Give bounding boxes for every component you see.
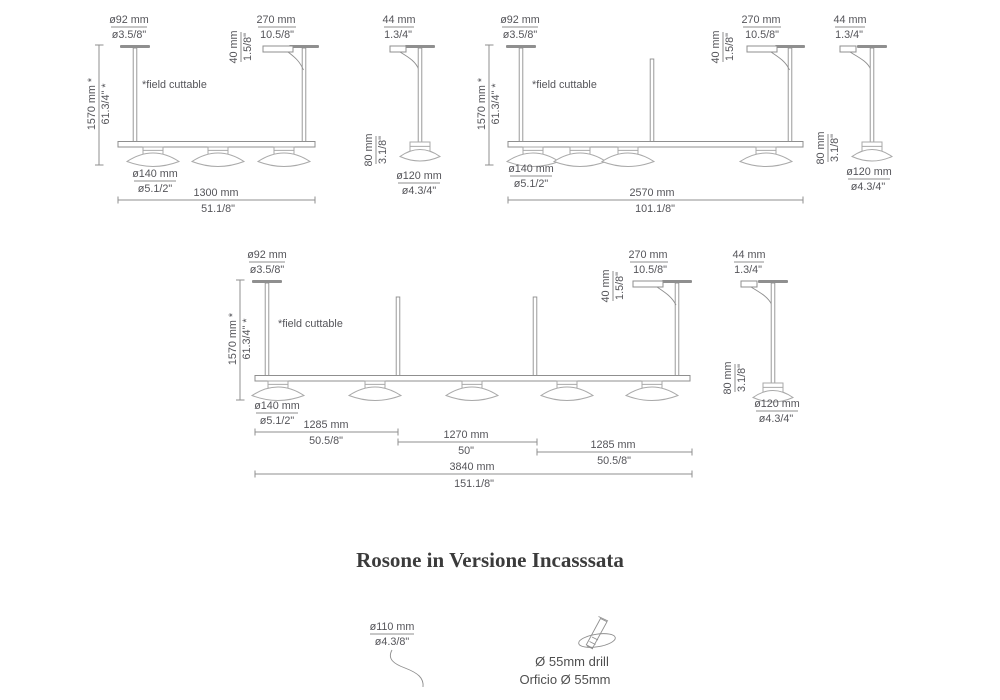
- drill-note-it: Orficio Ø 55mm: [519, 672, 610, 687]
- dim-canopy44-inch: 1.3/4": [384, 29, 412, 41]
- dim-drop1570-mm: 1570 mm *: [227, 312, 239, 365]
- dim-drop80-mm: 80 mm: [722, 361, 734, 394]
- dim-canopy44-mm: 44 mm: [383, 14, 416, 26]
- dim-drop1570-mm: 1570 mm *: [476, 77, 488, 130]
- dim-shade120-mm: ø120 mm: [846, 166, 892, 178]
- lamp-shade: [192, 147, 244, 167]
- power-canopy-box: [747, 46, 777, 52]
- dim-shade140-inch: ø5.1/2": [260, 415, 295, 427]
- dim-shade140-inch: ø5.1/2": [138, 183, 173, 195]
- fixture-3840mm: 1570 mm * 61.3/4" * ø92 mm ø3.5/8" 270 m…: [227, 249, 692, 490]
- dim-rosone110-mm: ø110 mm: [370, 621, 415, 633]
- dim-canopy92-mm: ø92 mm: [500, 14, 540, 26]
- dim-drop80-inch: 3.1/8": [736, 364, 748, 392]
- lamp-shade: [400, 142, 440, 161]
- field-cuttable-note: *field cuttable: [142, 79, 207, 91]
- suspension-rod: [675, 283, 679, 376]
- ceiling-canopy: [252, 280, 282, 283]
- fixture-bar: [508, 142, 803, 148]
- dim-len1270-inch: 50": [458, 445, 474, 457]
- fixture-bar: [118, 142, 315, 148]
- dim-canopy92-mm: ø92 mm: [109, 14, 149, 26]
- dim-shade120-mm: ø120 mm: [396, 170, 442, 182]
- power-wire: [751, 287, 772, 305]
- dim-shade120-inch: ø4.3/4": [851, 181, 886, 193]
- dim-track270-mm: 270 mm: [741, 14, 780, 26]
- dim-len1285-mm: 1285 mm: [590, 439, 635, 451]
- dim-track270-mm: 270 mm: [256, 14, 295, 26]
- dim-canopy92-mm: ø92 mm: [247, 249, 287, 261]
- power-wire: [400, 52, 419, 70]
- suspension-rod: [302, 48, 306, 142]
- dim-len2570-mm: 2570 mm: [629, 187, 674, 199]
- power-wire: [657, 287, 676, 305]
- suspension-rod: [771, 283, 775, 383]
- fixture-2570mm: 1570 mm * 61.3/4" * ø92 mm ø3.5/8" 270 m…: [476, 14, 805, 215]
- dim-track40-inch: 1.5/8": [242, 33, 254, 61]
- lamp-shade: [252, 381, 304, 401]
- dim-track40-mm: 40 mm: [600, 269, 612, 302]
- dim-track40-inch: 1.5/8": [614, 272, 626, 300]
- dim-shade140-inch: ø5.1/2": [514, 178, 549, 190]
- dim-rosone110-inch: ø4.3/8": [375, 636, 410, 648]
- dim-drop80-inch: 3.1/8": [377, 136, 389, 164]
- dim-len3840-inch: 151.1/8": [454, 478, 494, 490]
- dim-track270-inch: 10.5/8": [260, 29, 294, 41]
- dim-len1270-mm: 1270 mm: [443, 429, 488, 441]
- lamp-shade: [349, 381, 401, 401]
- dim-len3840-mm: 3840 mm: [449, 461, 494, 473]
- dim-track40-mm: 40 mm: [228, 30, 240, 63]
- power-canopy-box: [633, 281, 663, 287]
- pendant-single-1: 44 mm 1.3/4" 80 mm 3.1/8" ø120 mm ø4.3/4…: [363, 14, 442, 197]
- dim-track270-mm: 270 mm: [628, 249, 667, 261]
- dim-canopy44-mm: 44 mm: [733, 249, 766, 261]
- support-rod-cut: [396, 297, 400, 376]
- power-canopy-box: [741, 281, 757, 287]
- dim-drop80-inch: 3.1/8": [829, 134, 841, 162]
- dim-len1300-mm: 1300 mm: [193, 187, 238, 199]
- support-rod-cut: [533, 297, 537, 376]
- support-rod-cut: [650, 59, 654, 142]
- ceiling-canopy: [758, 280, 788, 283]
- dim-track270-inch: 10.5/8": [745, 29, 779, 41]
- dim-canopy92-inch: ø3.5/8": [503, 29, 538, 41]
- field-cuttable-note: *field cuttable: [532, 79, 597, 91]
- lamp-shade: [740, 147, 792, 167]
- dim-shade140-mm: ø140 mm: [254, 400, 300, 412]
- dim-shade140-mm: ø140 mm: [508, 163, 554, 175]
- dim-drop1570-inch: 61.3/4" *: [241, 318, 253, 360]
- dim-drop1570-inch: 61.3/4" *: [490, 83, 502, 125]
- dim-len1285-mm: 1285 mm: [303, 419, 348, 431]
- dim-shade120-inch: ø4.3/4": [402, 185, 437, 197]
- dim-track40-mm: 40 mm: [710, 30, 722, 63]
- suspension-rod: [870, 48, 874, 142]
- pendant-single-3: 44 mm 1.3/4" 80 mm 3.1/8" ø120 mm ø4.3/4…: [722, 249, 800, 425]
- lamp-shade: [554, 147, 606, 167]
- dim-len2570-inch: 101.1/8": [635, 203, 675, 215]
- power-wire: [771, 52, 790, 70]
- dim-canopy92-inch: ø3.5/8": [112, 29, 147, 41]
- drill-note-en: Ø 55mm drill: [535, 654, 609, 669]
- ceiling-canopy: [662, 280, 692, 283]
- dim-drop1570-mm: 1570 mm *: [86, 77, 98, 130]
- fixture-1300mm: 1570 mm * 61.3/4" * ø92 mm ø3.5/8" 270 m…: [86, 14, 319, 215]
- dim-canopy44-inch: 1.3/4": [734, 264, 762, 276]
- lamp-shade: [602, 147, 654, 167]
- power-wire: [850, 52, 871, 70]
- dim-shade120-inch: ø4.3/4": [759, 413, 794, 425]
- field-cuttable-note: *field cuttable: [278, 318, 343, 330]
- dim-drop1570-inch: 61.3/4" *: [100, 83, 112, 125]
- lamp-shade: [626, 381, 678, 401]
- suspension-rod: [519, 48, 523, 142]
- fixture-bar: [255, 376, 690, 382]
- suspension-rod: [788, 48, 792, 142]
- dim-len1285-inch: 50.5/8": [309, 435, 343, 447]
- dim-len1285-inch: 50.5/8": [597, 455, 631, 467]
- dim-canopy44-mm: 44 mm: [834, 14, 867, 26]
- dim-shade140-mm: ø140 mm: [132, 168, 178, 180]
- power-canopy-box: [840, 46, 856, 52]
- dim-track270-inch: 10.5/8": [633, 264, 667, 276]
- dimension-drawing: 1570 mm * 61.3/4" * ø92 mm ø3.5/8" 270 m…: [0, 0, 1000, 700]
- dim-canopy44-inch: 1.3/4": [835, 29, 863, 41]
- page-title: Rosone in Versione Incasssata: [356, 548, 624, 572]
- dim-drop80-mm: 80 mm: [363, 133, 375, 166]
- lamp-shade: [258, 147, 310, 167]
- dim-shade120-mm: ø120 mm: [754, 398, 800, 410]
- dim-len1300-inch: 51.1/8": [201, 203, 235, 215]
- rosone-section: ø110 mm ø4.3/8" Ø 55mm drill Orficio Ø 5…: [370, 617, 617, 688]
- leader-line: [390, 650, 423, 687]
- power-wire: [288, 52, 304, 70]
- suspension-rod: [265, 283, 269, 376]
- spec-sheet: 1570 mm * 61.3/4" * ø92 mm ø3.5/8" 270 m…: [0, 0, 1000, 700]
- pendant-single-2: 44 mm 1.3/4" 80 mm 3.1/8" ø120 mm ø4.3/4…: [815, 14, 892, 193]
- drill-icon: [578, 617, 617, 650]
- power-canopy-box: [263, 46, 293, 52]
- lamp-shade: [541, 381, 593, 401]
- dim-canopy92-inch: ø3.5/8": [250, 264, 285, 276]
- dim-track40-inch: 1.5/8": [724, 33, 736, 61]
- lamp-shade: [852, 142, 892, 161]
- suspension-rod: [133, 48, 137, 142]
- dim-drop80-mm: 80 mm: [815, 131, 827, 164]
- power-canopy-box: [390, 46, 406, 52]
- lamp-shade: [127, 147, 179, 167]
- lamp-shade: [446, 381, 498, 401]
- suspension-rod: [418, 48, 422, 142]
